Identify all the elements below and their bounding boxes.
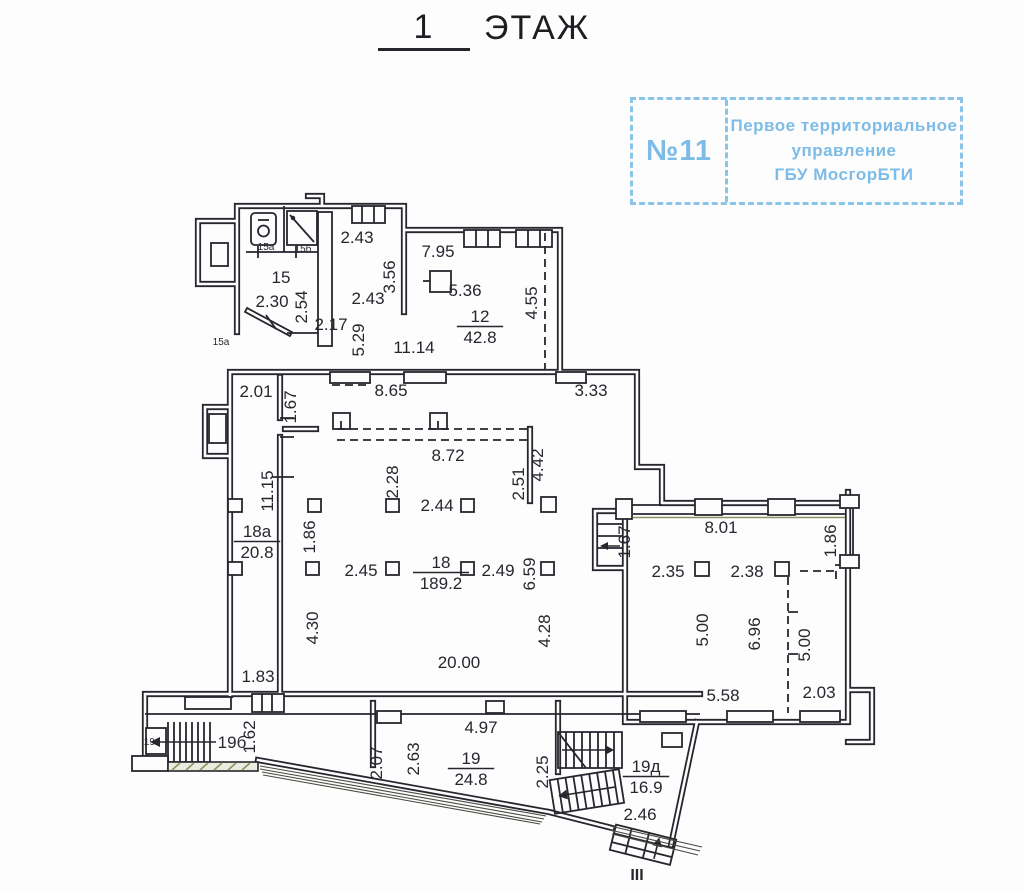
- entrance-marker: III: [630, 867, 643, 884]
- small-room-label: 19в: [144, 737, 160, 748]
- small-room-label: 15б: [295, 243, 312, 255]
- dimension-label: 2.45: [344, 561, 377, 580]
- room-number: 18: [432, 553, 451, 572]
- dimension-label: 2.44: [420, 496, 453, 515]
- dimension-label: 7.95: [421, 242, 454, 261]
- dimension-label: 20.00: [438, 653, 481, 672]
- dimension-label: 1.86: [821, 524, 840, 557]
- dimension-label: 5.58: [706, 686, 739, 705]
- dimension-label: 2.17: [314, 315, 347, 334]
- room-area: 24.8: [454, 770, 487, 789]
- dimension-label: 2.30: [255, 292, 288, 311]
- room-area: 20.8: [240, 543, 273, 562]
- room-number: 18а: [243, 522, 272, 541]
- room-area: 16.9: [629, 778, 662, 797]
- dimension-label: 2.25: [533, 755, 552, 788]
- scanned-floor-plan-page: 1 ЭТАЖ №11 Первое территориальное управл…: [0, 0, 1024, 891]
- window-sill: [132, 756, 258, 771]
- dimension-label: 8.01: [704, 518, 737, 537]
- dimension-label: 4.30: [303, 611, 322, 644]
- dimension-label: 4.28: [535, 614, 554, 647]
- dimension-label: 8.65: [374, 381, 407, 400]
- small-room-label: 15а: [213, 337, 230, 348]
- dimension-label: 8.72: [431, 446, 464, 465]
- dimension-label: 4.42: [528, 448, 547, 481]
- dimension-label: 5.00: [693, 613, 712, 646]
- dimension-label: 3.56: [380, 260, 399, 293]
- dimension-label: 2.07: [367, 746, 386, 779]
- dimension-label: 2.43: [340, 228, 373, 247]
- dimension-label: 5.29: [349, 323, 368, 356]
- staircase-19d-lower: [550, 769, 624, 814]
- room-number: 19д: [632, 757, 661, 776]
- dimension-label: 2.03: [802, 683, 835, 702]
- dimension-label: 1.67: [615, 525, 634, 558]
- dimension-label: 2.28: [383, 465, 402, 498]
- dimension-label: 2.49: [481, 561, 514, 580]
- labels-layer: 2.437.955.362.432.302.1711.143.562.545.2…: [144, 228, 840, 884]
- dimension-label: 6.59: [520, 557, 539, 590]
- dimension-label: 1.86: [300, 520, 319, 553]
- dimension-label: 1.83: [241, 667, 274, 686]
- entrance-stoop: [610, 825, 676, 865]
- dimension-label: 5.36: [448, 281, 481, 300]
- room-number: 15: [272, 268, 291, 287]
- dimension-label: 5.00: [795, 628, 814, 661]
- dimension-label: 2.35: [651, 562, 684, 581]
- dimension-label: 2.46: [623, 805, 656, 824]
- dimension-label: 3.33: [574, 381, 607, 400]
- dimension-label: 2.63: [404, 742, 423, 775]
- room-number: 19: [462, 749, 481, 768]
- dimension-label: 4.97: [464, 718, 497, 737]
- dimension-label: 11.14: [393, 338, 434, 357]
- dimension-label: 1.67: [281, 390, 300, 423]
- floor-plan-svg: 2.437.955.362.432.302.1711.143.562.545.2…: [0, 0, 1024, 891]
- dimension-label: 11.15: [258, 470, 277, 511]
- room-area: 189.2: [420, 574, 463, 593]
- room-area: 42.8: [463, 328, 496, 347]
- room-number: 19б: [218, 733, 247, 752]
- dimension-label: 2.54: [292, 290, 311, 323]
- dimension-label: 6.96: [745, 617, 764, 650]
- dimension-label: 2.01: [239, 382, 272, 401]
- washbasin-icon: [251, 213, 276, 245]
- dimension-label: 2.38: [730, 562, 763, 581]
- room-number: 12: [471, 307, 490, 326]
- staircase-19d-upper: [558, 732, 622, 768]
- dimension-label: 2.51: [509, 467, 528, 500]
- shower-icon: [287, 211, 317, 245]
- dimension-label: 4.55: [522, 286, 541, 319]
- small-room-label: 15а: [258, 242, 275, 253]
